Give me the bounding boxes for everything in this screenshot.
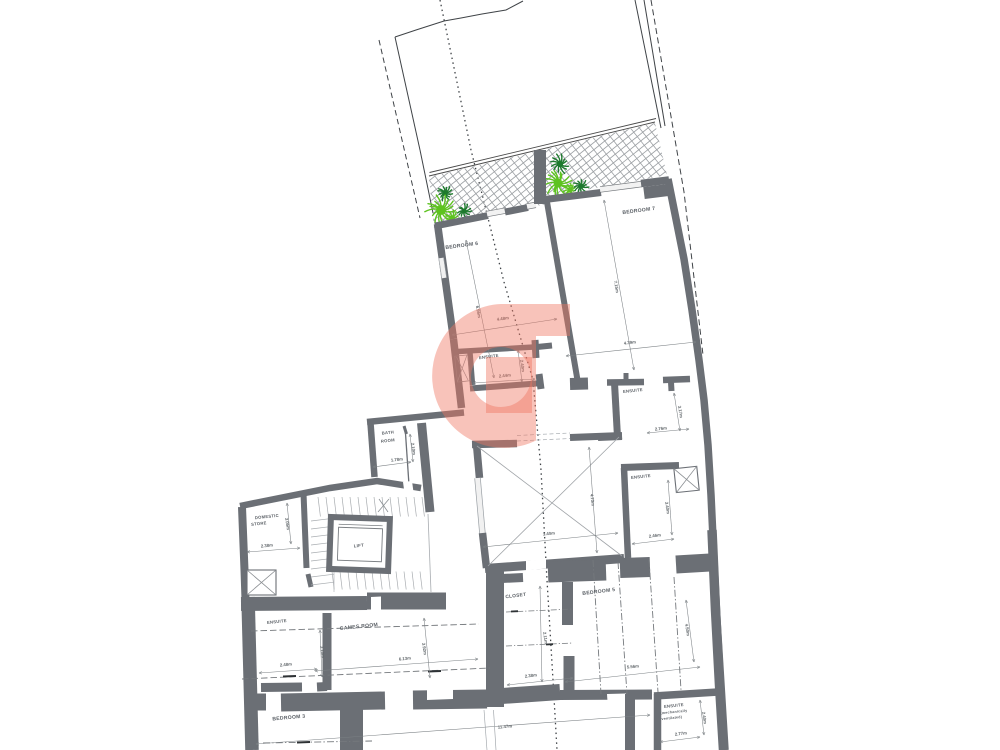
- svg-text:LIFT: LIFT: [354, 543, 365, 549]
